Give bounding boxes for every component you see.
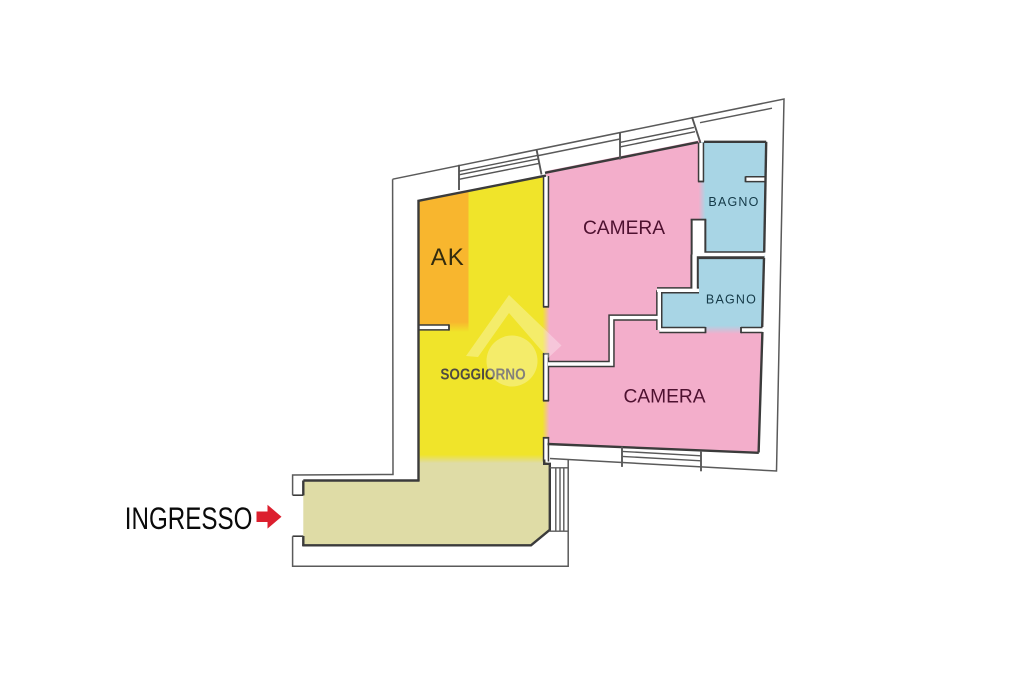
svg-text:CAMERA: CAMERA bbox=[623, 387, 705, 408]
svg-text:AK: AK bbox=[431, 244, 465, 271]
svg-text:BAGNO: BAGNO bbox=[708, 195, 759, 209]
svg-text:INGRESSO: INGRESSO bbox=[125, 501, 253, 536]
svg-text:BAGNO: BAGNO bbox=[706, 293, 757, 307]
svg-text:CAMERA: CAMERA bbox=[583, 218, 665, 239]
